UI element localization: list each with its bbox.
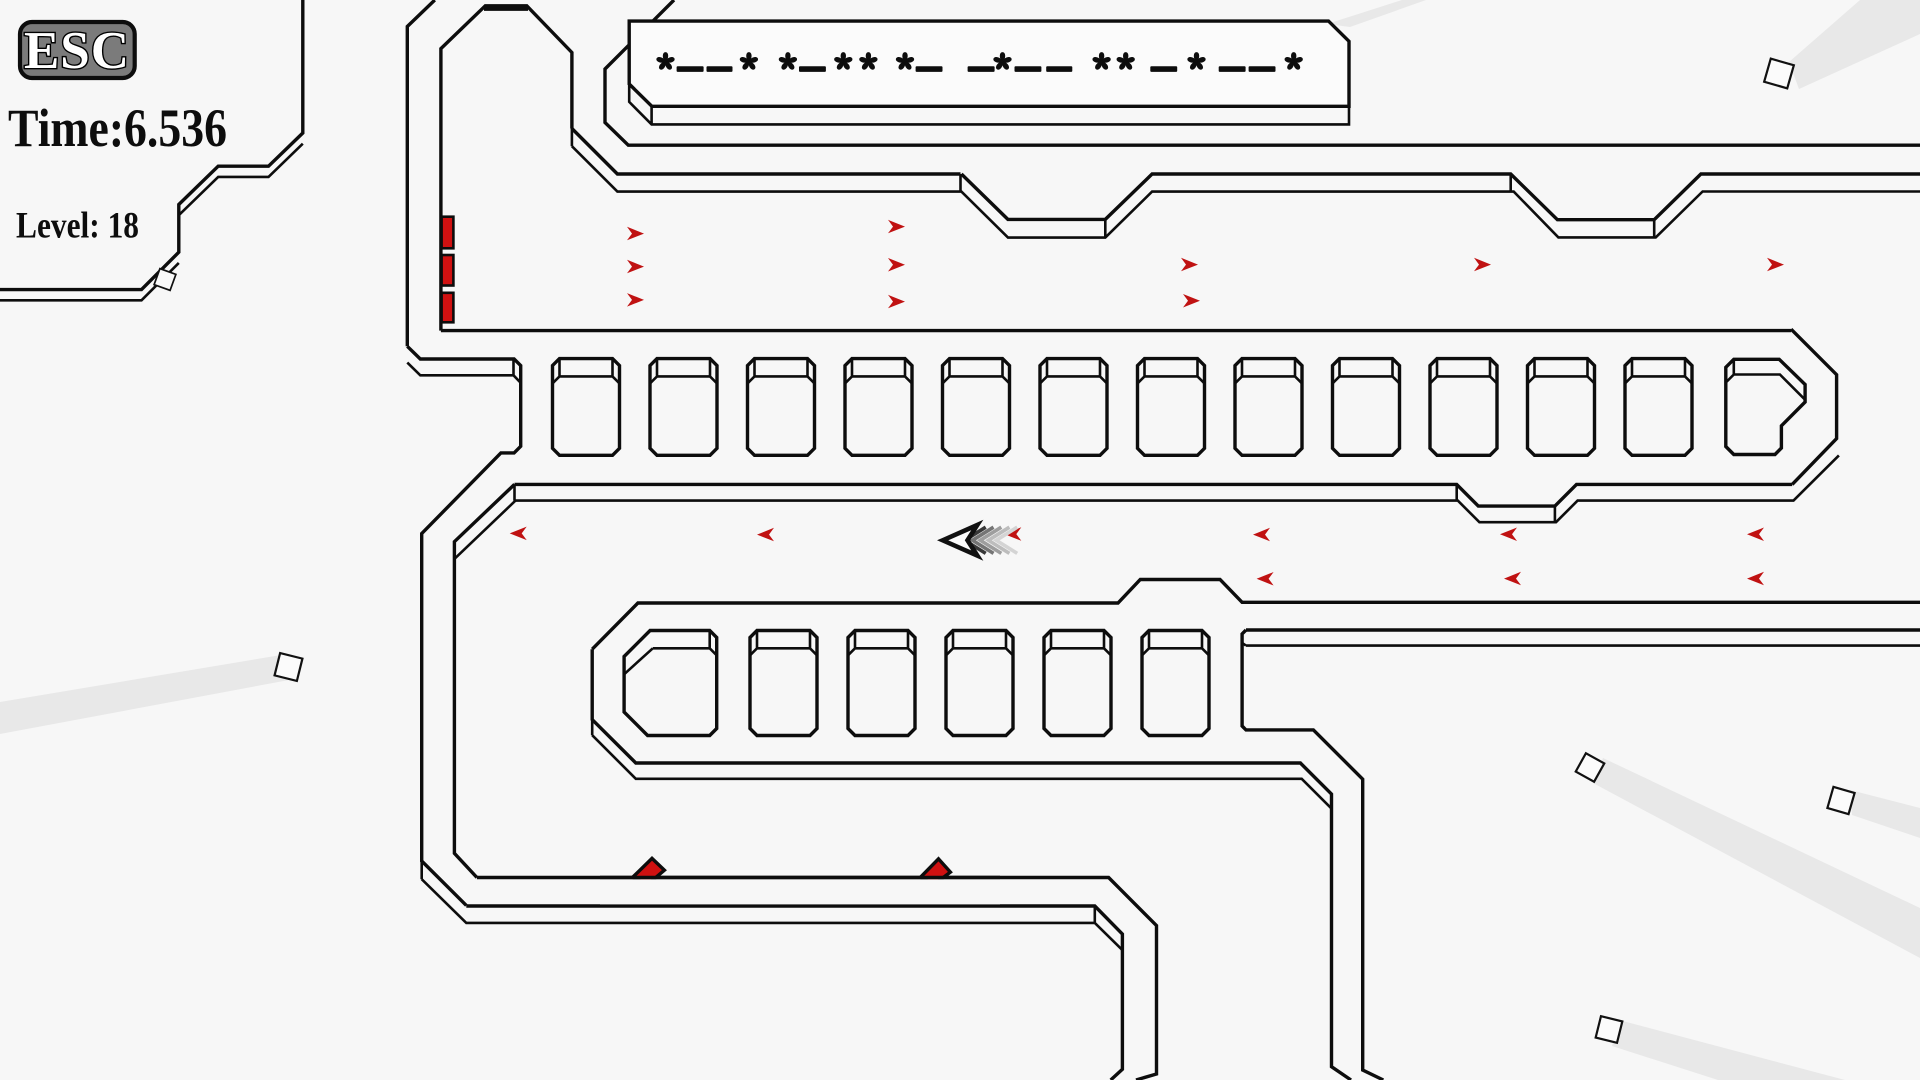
svg-text:Time:6.536: Time:6.536 <box>8 98 227 158</box>
svg-text:Level: 18: Level: 18 <box>16 206 139 247</box>
svg-text:ESC: ESC <box>24 22 130 80</box>
